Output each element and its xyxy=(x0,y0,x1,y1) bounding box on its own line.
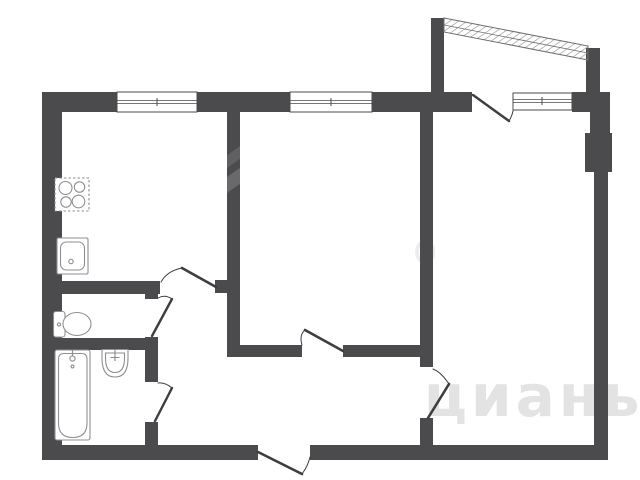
bathtub-icon xyxy=(55,350,90,440)
wall-room1-bottom-left xyxy=(227,345,302,357)
wall-right-top xyxy=(590,92,610,133)
toilet-icon xyxy=(54,312,92,338)
toilet-flush-button xyxy=(57,323,60,326)
washbasin-icon xyxy=(102,350,128,378)
wall-balcony-post-left xyxy=(431,18,444,92)
wall-bottom-right xyxy=(310,445,608,460)
wall-bath-door-stub xyxy=(145,422,158,445)
wall-top-c xyxy=(372,92,472,112)
stove-burner xyxy=(61,197,71,207)
toilet-bowl xyxy=(63,313,91,336)
window-room1 xyxy=(290,92,372,112)
wall-room2-left xyxy=(420,112,433,367)
wall-wc-door-jamb xyxy=(145,293,158,299)
wall-bottom-left xyxy=(42,445,258,460)
stove-burner xyxy=(72,195,85,208)
bathtub-drain xyxy=(71,365,74,368)
wall-top-a xyxy=(62,92,117,112)
kitchen-sink-icon xyxy=(57,238,88,274)
stove-icon xyxy=(55,178,89,211)
stove-body xyxy=(55,178,89,211)
window-room2 xyxy=(513,93,572,110)
wall-wc-bath-divider xyxy=(42,338,147,350)
wall-right xyxy=(594,133,608,460)
wall-top-b xyxy=(197,92,290,112)
stove-burner xyxy=(74,182,84,192)
stove-burner xyxy=(59,182,72,195)
wall-room1-bottom-right xyxy=(343,345,433,357)
sink-drain xyxy=(69,259,73,263)
sink-basin xyxy=(61,242,85,270)
floor-plan: циань о xyxy=(0,0,640,480)
wall-kitchen-bottom xyxy=(42,281,160,294)
bathtub-faucet xyxy=(70,356,75,361)
wall-room2-door-stub xyxy=(420,418,433,445)
floor-plan-canvas: циань о xyxy=(0,0,640,480)
window-kitchen xyxy=(117,92,197,112)
